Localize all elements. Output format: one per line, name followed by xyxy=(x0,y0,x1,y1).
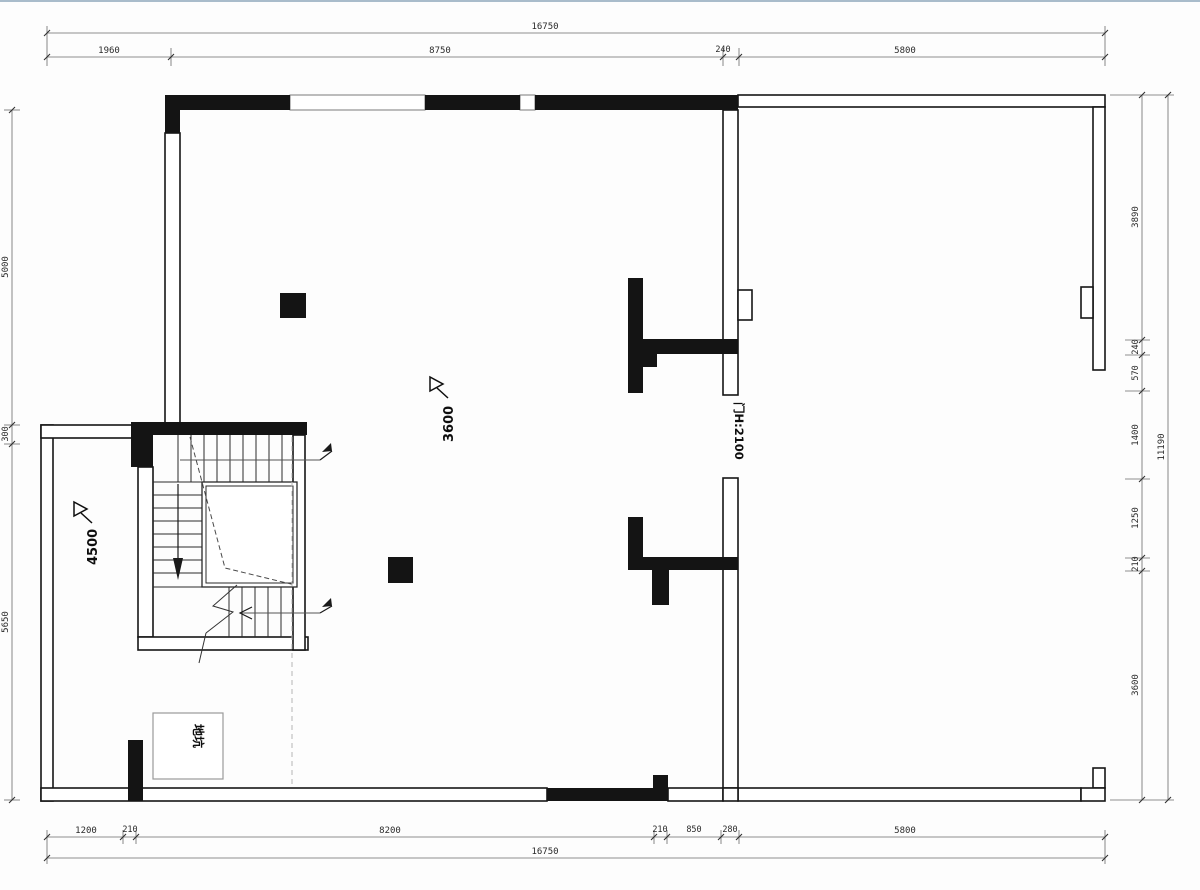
floor-plan-canvas: 16750 1960 8750 240 5800 1200 210 8200 2… xyxy=(0,0,1200,890)
dim-bottom-1: 1200 xyxy=(75,826,97,836)
dim-top-4: 5800 xyxy=(894,46,916,56)
dim-left-1: 5000 xyxy=(1,256,11,278)
pilaster-party-wall xyxy=(738,290,752,320)
level-main-label: 3600 xyxy=(442,406,457,442)
wall-rightwing-top xyxy=(738,95,1105,107)
wall-annex-left xyxy=(41,425,53,801)
stair-break-zigzag xyxy=(199,585,237,663)
dim-top-2: 8750 xyxy=(429,46,451,56)
wall-stair-top-bar xyxy=(131,422,307,435)
pier-annex-bottom xyxy=(128,740,143,801)
wall-stair-bottom xyxy=(138,637,308,650)
wall-stair-left xyxy=(138,467,153,637)
dim-right-5: 1250 xyxy=(1131,507,1141,529)
wall-lower-t-stub xyxy=(652,570,669,605)
pit-outline xyxy=(153,713,223,779)
dim-right-6: 210 xyxy=(1131,556,1141,571)
dim-left-2: 300 xyxy=(1,426,11,441)
window-top-2 xyxy=(520,95,535,110)
wall-main-bottom-left xyxy=(41,788,547,801)
dim-right-4: 1400 xyxy=(1131,424,1141,446)
dim-right-1: 3890 xyxy=(1131,206,1141,228)
pit: 地坑 xyxy=(153,713,223,779)
door-height-label: 门H:2100 xyxy=(732,402,746,460)
wall-annex-top xyxy=(41,425,133,438)
wall-upper-t-notch xyxy=(643,354,657,367)
wall-upper-t-vert xyxy=(628,278,643,393)
pit-label: 地坑 xyxy=(191,724,206,748)
dim-right-overall: 11190 xyxy=(1157,433,1167,460)
dim-bottom-5: 850 xyxy=(686,825,701,835)
wall-top-left-corner xyxy=(165,110,180,133)
dim-top-1: 1960 xyxy=(98,46,120,56)
column-1 xyxy=(280,293,306,318)
level-marker-main: 3600 xyxy=(430,377,457,442)
wall-top-seg2 xyxy=(425,95,520,110)
wall-corner-bottom-right-horz xyxy=(1081,788,1105,801)
column-2 xyxy=(388,557,413,583)
wall-lower-t-horz xyxy=(628,557,738,570)
level-stair-label: 4500 xyxy=(86,529,101,565)
dim-bottom-3: 8200 xyxy=(379,826,401,836)
dim-left-3: 5650 xyxy=(1,611,11,633)
dim-bottom-4: 210 xyxy=(652,825,667,835)
dim-right-7: 3600 xyxy=(1131,674,1141,696)
wall-main-left xyxy=(165,133,180,425)
wall-top-seg3 xyxy=(535,95,738,110)
dim-bottom-overall: 16750 xyxy=(531,847,558,857)
wall-main-bottom-under-party xyxy=(723,788,738,801)
wall-corner-bottom-right-vert xyxy=(1093,768,1105,788)
dim-top-3: 240 xyxy=(715,45,730,55)
dim-right-3: 570 xyxy=(1131,365,1141,380)
floor-plan-drawing: 16750 1960 8750 240 5800 1200 210 8200 2… xyxy=(0,0,1200,890)
wall-rightwing-bottom xyxy=(738,788,1081,801)
wall-bottom-solid-seg xyxy=(547,775,668,801)
dim-bottom-2: 210 xyxy=(122,825,137,835)
window-edge-strip xyxy=(0,0,1200,2)
wall-upper-t-horz xyxy=(628,339,738,354)
stair-down-arrow xyxy=(173,558,183,580)
wall-top-seg1 xyxy=(165,95,290,110)
wall-rightwing-right xyxy=(1093,107,1105,370)
thin-walls xyxy=(41,95,1105,801)
dim-bottom-6: 280 xyxy=(722,825,737,835)
stair-entry-guide xyxy=(240,598,332,619)
dim-right-2: 240 xyxy=(1131,339,1141,354)
solid-walls xyxy=(128,95,738,801)
pier-stair-corner xyxy=(131,422,153,467)
pilaster-right-wall xyxy=(1081,287,1093,318)
level-marker-stair: 4500 xyxy=(74,502,101,565)
wall-party-lower xyxy=(723,478,738,788)
dim-top-overall: 16750 xyxy=(531,22,558,32)
window-top-1 xyxy=(290,95,425,110)
dim-bottom-7: 5800 xyxy=(894,826,916,836)
wall-main-bottom-mid xyxy=(668,788,723,801)
